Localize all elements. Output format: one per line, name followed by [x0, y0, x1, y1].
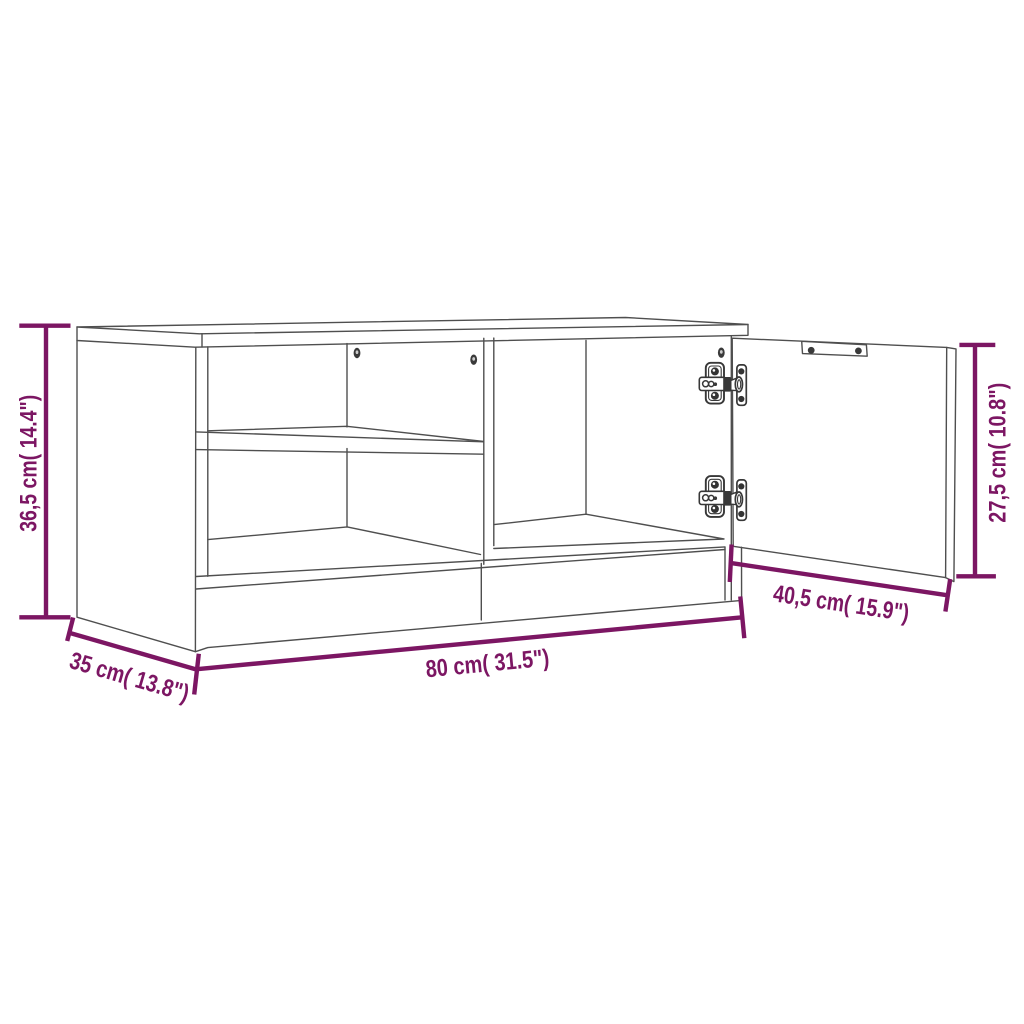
svg-text:36,5 cm( 14.4"): 36,5 cm( 14.4") — [16, 395, 43, 532]
svg-text:35 cm( 13.8"): 35 cm( 13.8") — [66, 647, 192, 707]
svg-text:27,5 cm( 10.8"): 27,5 cm( 10.8") — [985, 383, 1012, 523]
svg-text:80 cm( 31.5"): 80 cm( 31.5") — [424, 645, 550, 684]
